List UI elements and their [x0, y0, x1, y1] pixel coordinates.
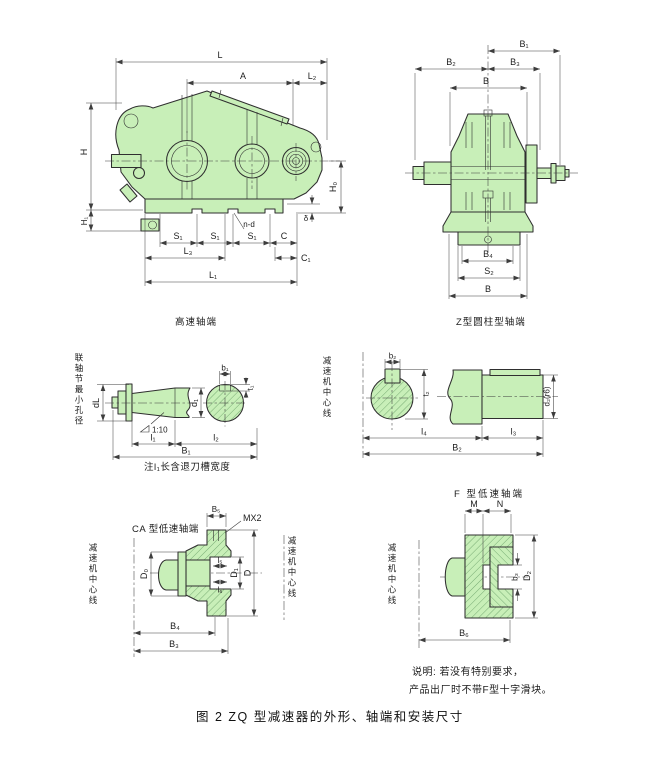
dim-label-S2: S₂: [484, 266, 494, 276]
dim-label-l4: l₄: [421, 427, 427, 437]
dim-label-D2: D₂: [522, 571, 532, 581]
dim-label-l2: l₂: [213, 433, 219, 443]
caption-high-speed-shaft-end: 高速轴端: [175, 314, 217, 328]
label-center-line-f: 减速机中心线: [386, 543, 398, 606]
dim-label-L: L: [217, 50, 222, 60]
dim-label-C1: C₁: [301, 253, 311, 263]
figure-page: L A L₂ H H₁ H₀ δ S₁ S₁ S₁ n-d C C₁ L₃ L₁: [0, 0, 650, 760]
caption-f-type-shaft-end: F 型低速轴端: [454, 486, 524, 500]
dim-label-N: N: [497, 499, 504, 509]
dim-label-delta: δ: [304, 214, 309, 223]
dim-label-B2-low: B₂: [452, 443, 462, 453]
dim-label-A: A: [240, 71, 246, 81]
dim-label-H1: H₁: [80, 216, 89, 225]
dim-label-l3: l₃: [511, 427, 517, 437]
label-center-line-low-speed: 减速机中心线: [321, 356, 333, 419]
figure-caption: 图 2 ZQ 型减速器的外形、轴端和安装尺寸: [196, 706, 464, 725]
dim-label-B4-end: B₄: [483, 249, 493, 259]
dim-label-t2: t₂: [422, 391, 431, 396]
note-line-2: 产品出厂时不带F型十字滑块。: [409, 681, 552, 696]
note-line-1: 说明: 若没有特别要求，: [412, 663, 524, 678]
dim-label-D: D: [243, 569, 253, 576]
low-speed-shaft-view: b₂ t₂ d₂(r6) l₄ l₃ B₂: [363, 352, 558, 459]
dim-label-M: M: [470, 499, 478, 509]
dim-label-C: C: [281, 231, 288, 241]
dim-label-dL: dL: [91, 398, 101, 408]
dim-label-D0: D₀: [139, 569, 149, 579]
dim-label-L1: L₁: [209, 270, 217, 280]
dim-label-b1: b₁: [221, 364, 228, 373]
dim-label-B1-taper: B₁: [181, 446, 190, 456]
dim-label-l6: l₆: [217, 586, 222, 595]
dim-label-B4-ca: B₄: [170, 621, 180, 631]
dim-label-S1-a: S₁: [173, 231, 182, 241]
dim-label-d1: d₁: [189, 399, 199, 407]
dim-label-l1: l₁: [150, 433, 155, 443]
dim-label-b3: b₃: [511, 573, 520, 581]
dim-label-S1-b: S₁: [210, 231, 219, 241]
dim-label-B1-end: B₁: [519, 39, 528, 49]
dim-label-B-bottom: B: [485, 284, 491, 294]
dim-label-B6: B₆: [459, 628, 469, 638]
dim-label-H0: H₀: [328, 182, 338, 192]
dim-label-nd: n-d: [243, 220, 255, 229]
dim-label-S1-c: S₁: [247, 231, 256, 241]
dim-label-t1: t₁: [246, 385, 255, 390]
dim-label-l5: l₅: [218, 556, 223, 565]
dim-label-B3-end: B₃: [510, 57, 520, 67]
dim-label-B5: B₅: [212, 505, 221, 514]
dim-label-B-top: B: [483, 76, 489, 86]
dim-label-b2: b₂: [389, 352, 397, 361]
label-coupling-min-bore: 联轴节最小孔径: [73, 353, 85, 427]
label-center-line-ca-left: 减速机中心线: [87, 543, 99, 606]
main-side-view: L A L₂ H H₁ H₀ δ S₁ S₁ S₁ n-d C C₁ L₃ L₁: [79, 50, 346, 286]
end-view-z-type: B₁ B₂ B₃ B B₄ S₂ B: [405, 39, 578, 299]
caption-z-type-shaft-end: Z型圆柱型轴端: [456, 314, 526, 328]
note-taper-length: 注l₁长含退刀槽宽度: [144, 459, 230, 473]
dim-label-MX2: MX2: [243, 513, 262, 523]
dim-label-H: H: [79, 149, 89, 156]
f-type-view: M N b₃ D₂ B₆: [419, 499, 538, 648]
label-center-line-ca-right: 减速机中心线: [286, 536, 298, 599]
taper-shaft-view: dL d₁ b₁ t₁ 1:10 l₁ l₂ B₁: [91, 364, 257, 461]
dim-label-B2-end: B₂: [446, 57, 456, 67]
dim-label-L2: L₂: [308, 71, 317, 81]
dim-label-L3: L₃: [184, 246, 193, 256]
caption-ca-type-shaft-end: CA 型低速轴端: [132, 521, 199, 535]
dim-label-D1: D₁: [229, 568, 239, 578]
dim-label-d2: d₂(r6): [543, 386, 552, 406]
dim-label-B3-ca: B₃: [169, 639, 179, 649]
